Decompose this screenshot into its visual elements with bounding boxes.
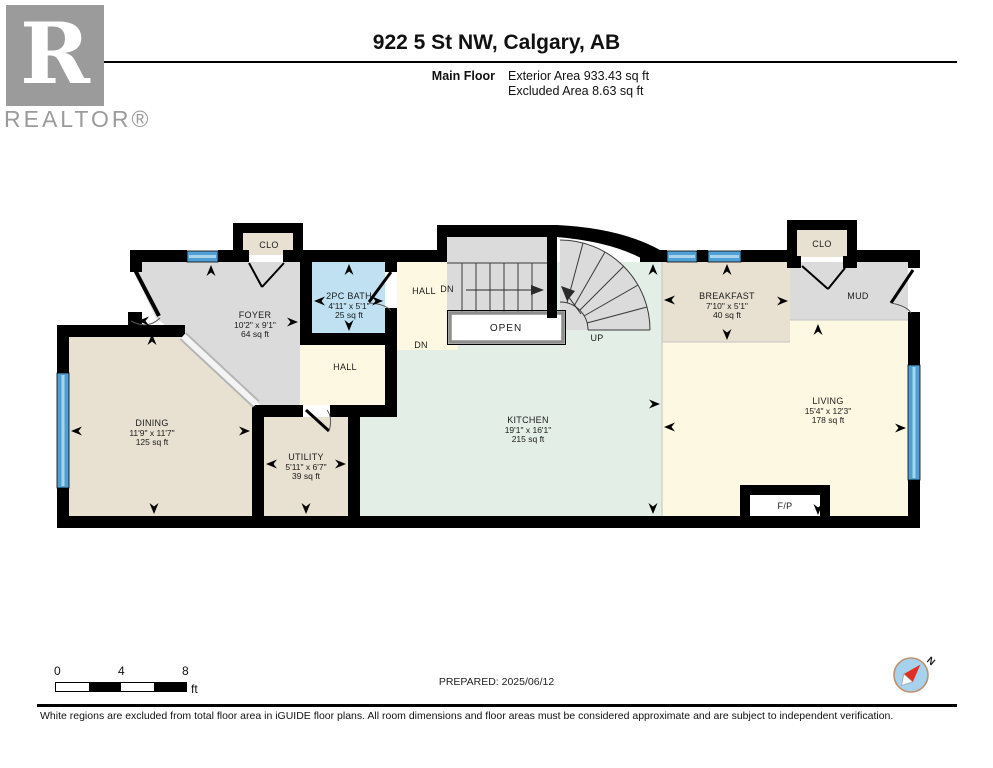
label-fireplace: F/P — [778, 501, 793, 511]
label-bath-area: 25 sq ft — [335, 310, 364, 320]
label-kitchen-area: 215 sq ft — [512, 434, 545, 444]
label-dn-lower: DN — [414, 340, 428, 350]
label-foyer-area: 64 sq ft — [241, 329, 270, 339]
realtor-logo: R — [6, 5, 104, 106]
compass-icon: N — [888, 650, 938, 700]
label-mud: MUD — [847, 291, 869, 301]
label-up: UP — [590, 333, 603, 343]
label-breakfast-area: 40 sq ft — [713, 310, 742, 320]
label-clo-right: CLO — [812, 239, 831, 249]
realtor-logo-letter: R — [20, 12, 90, 96]
label-foyer-name: FOYER — [239, 310, 272, 320]
prepared-date: PREPARED: 2025/06/12 — [0, 676, 993, 688]
footer-rule — [37, 704, 957, 707]
room-fills — [69, 230, 908, 516]
label-dn-upper: DN — [440, 284, 454, 294]
label-hall-upper: HALL — [412, 286, 436, 296]
label-breakfast-name: BREAKFAST — [699, 291, 755, 301]
label-hall-lower: HALL — [333, 362, 357, 372]
room-kitchen-ext — [360, 417, 400, 516]
disclaimer-text: White regions are excluded from total fl… — [40, 710, 893, 722]
label-kitchen-name: KITCHEN — [507, 415, 549, 425]
hall-lower — [300, 345, 397, 405]
label-living-name: LIVING — [812, 396, 843, 406]
label-open: OPEN — [490, 323, 522, 334]
label-utility-name: UTILITY — [288, 452, 324, 462]
floorplan-svg: CLO CLO FOYER 10'2" x 9'1" 64 sq ft 2PC … — [0, 0, 993, 768]
label-dining-name: DINING — [135, 418, 168, 428]
label-clo-left: CLO — [259, 240, 278, 250]
label-bath-name: 2PC BATH — [326, 291, 372, 301]
label-living-area: 178 sq ft — [812, 415, 845, 425]
label-dining-area: 125 sq ft — [136, 437, 169, 447]
label-utility-area: 39 sq ft — [292, 471, 321, 481]
floorplan-page: R REALTOR® 922 5 St NW, Calgary, AB Main… — [0, 0, 993, 768]
